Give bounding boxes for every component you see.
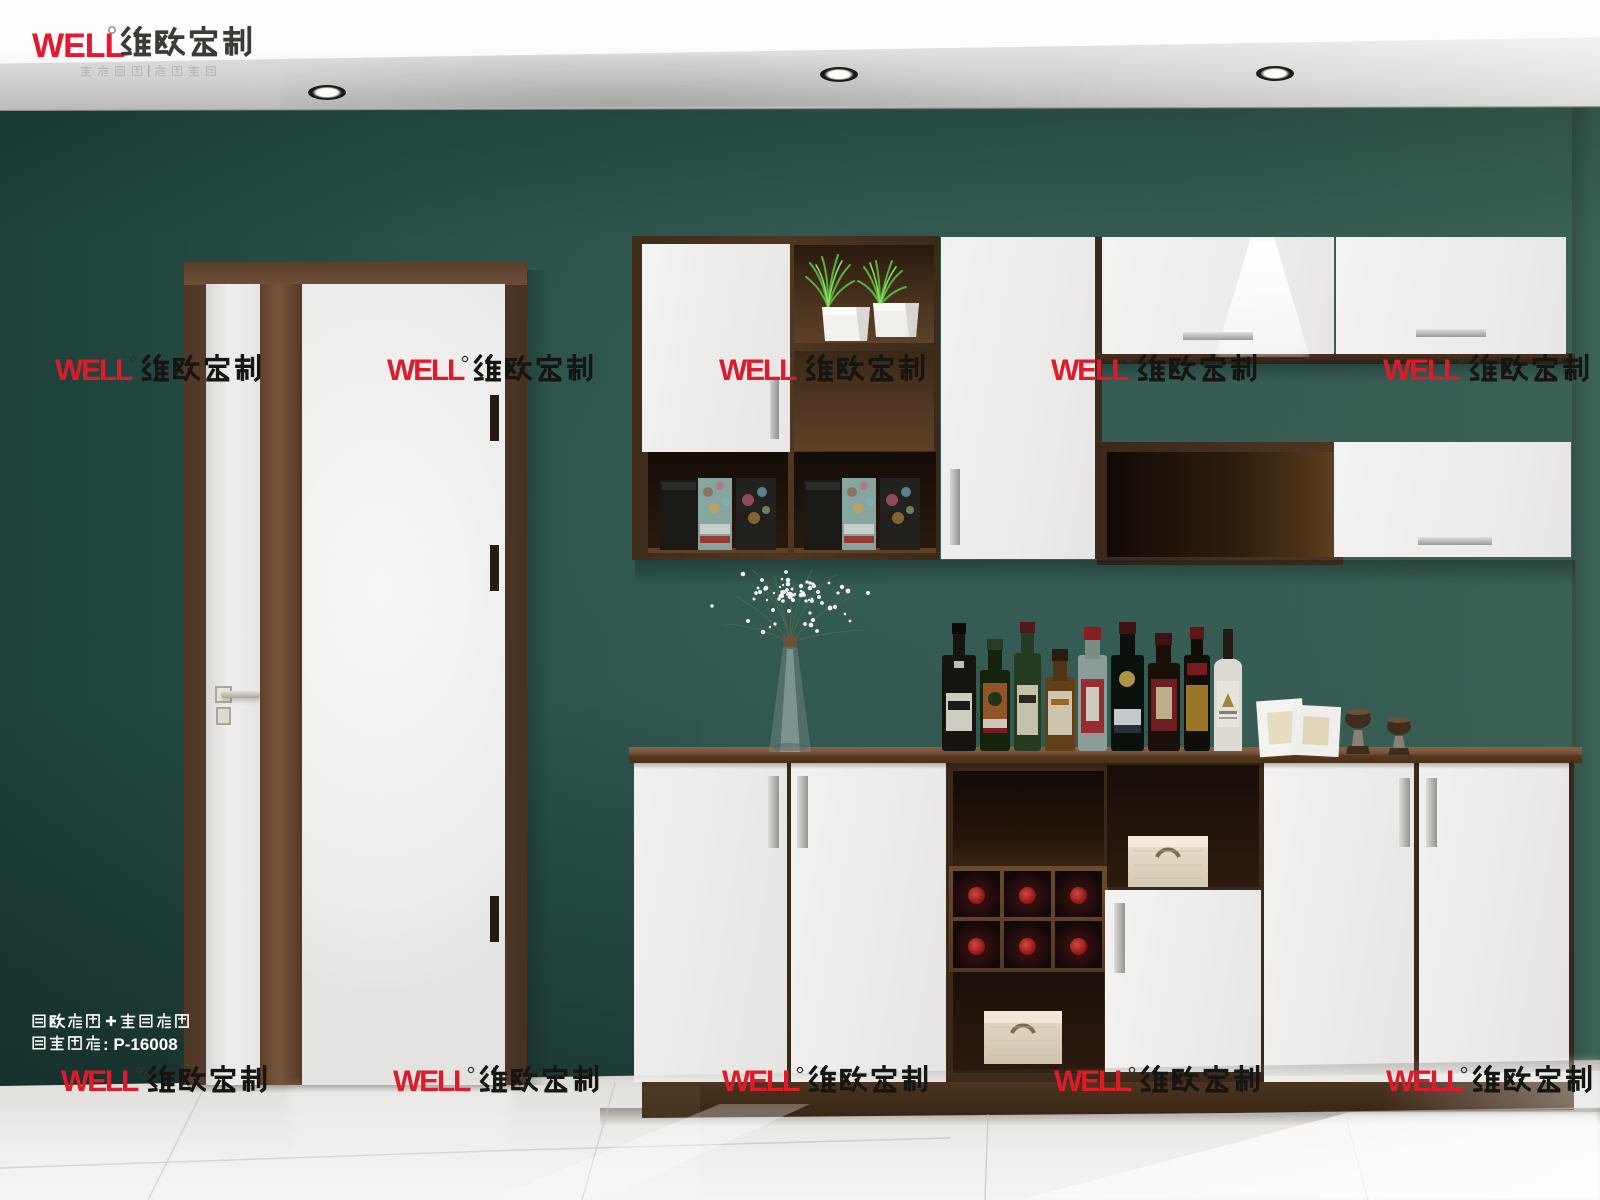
svg-text:: P-16008: : P-16008 [103, 1035, 178, 1054]
